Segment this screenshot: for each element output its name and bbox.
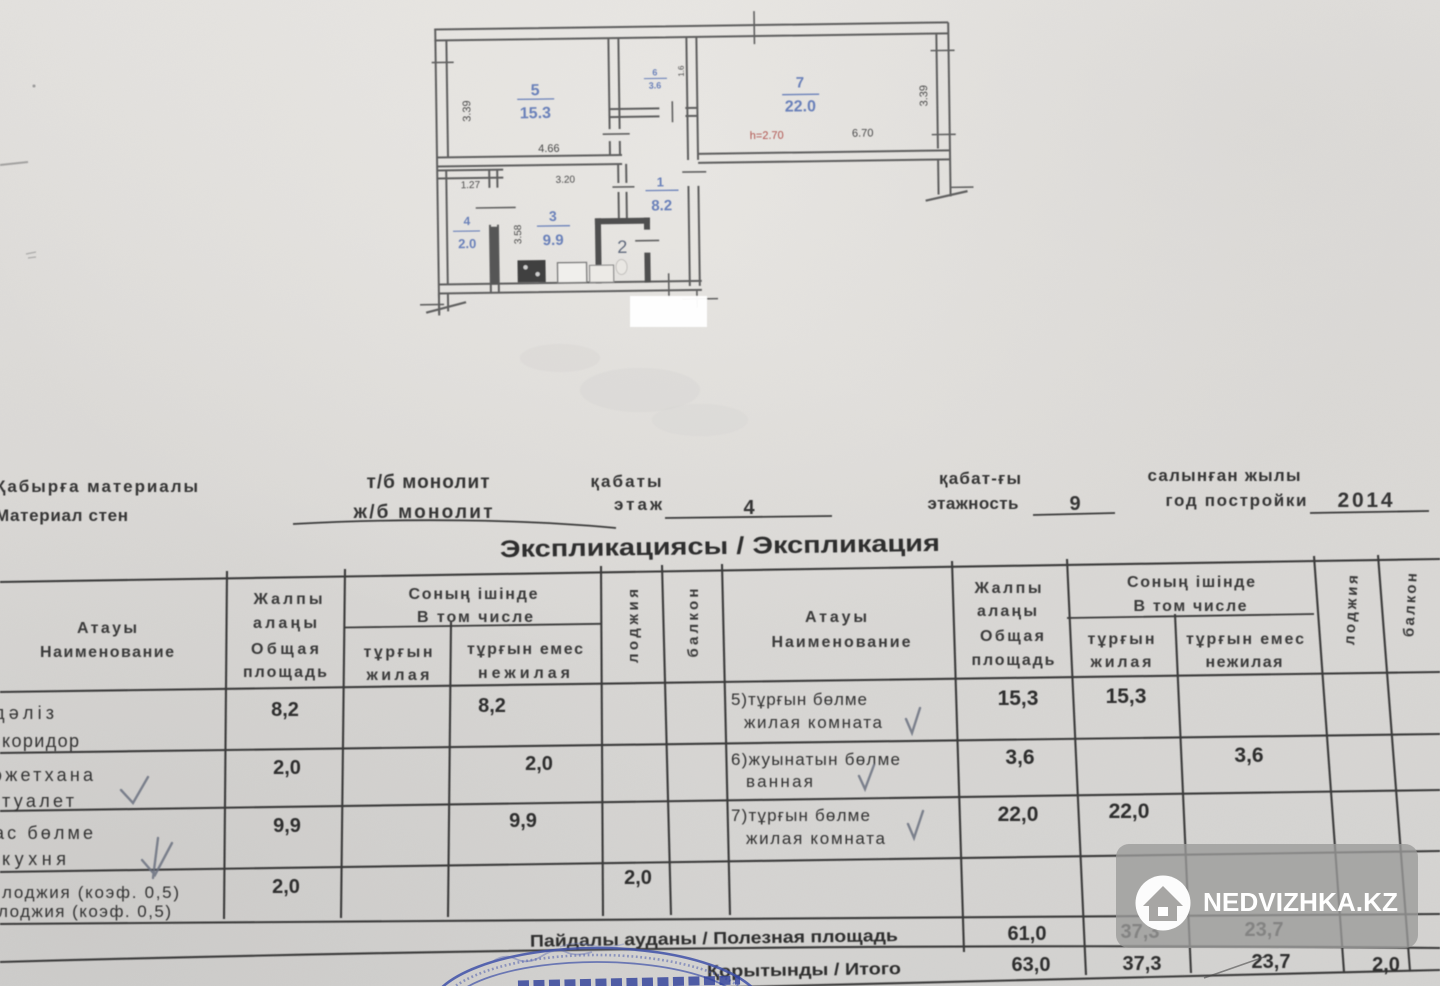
svg-text:6.70: 6.70 <box>852 127 874 139</box>
svg-text:Жалпы: Жалпы <box>974 580 1042 597</box>
svg-text:8.2: 8.2 <box>651 197 672 214</box>
svg-text:В том числе: В том числе <box>1134 598 1247 615</box>
svg-text:15,3: 15,3 <box>1106 685 1147 708</box>
svg-text:ас бөлме: ас бөлме <box>0 823 93 843</box>
svg-text:дәліз: дәліз <box>0 703 54 723</box>
svg-text:22.0: 22.0 <box>785 98 816 115</box>
svg-text:тұрғын: тұрғын <box>364 644 433 661</box>
svg-text:7: 7 <box>796 74 805 91</box>
svg-text:Жалпы: Жалпы <box>253 591 323 608</box>
svg-text:2.0: 2.0 <box>458 236 476 251</box>
svg-text:8,2: 8,2 <box>478 695 506 717</box>
svg-text:жилая: жилая <box>366 667 430 684</box>
svg-text:3.39: 3.39 <box>918 85 930 107</box>
svg-text:22,0: 22,0 <box>1109 800 1150 823</box>
svg-text:2,0: 2,0 <box>1372 954 1400 976</box>
svg-text:3.39: 3.39 <box>461 100 473 122</box>
svg-text:тұрғын емес: тұрғын емес <box>1186 631 1304 648</box>
svg-text:салынған жылы: салынған жылы <box>1148 466 1301 485</box>
svg-text:9,9: 9,9 <box>509 810 537 832</box>
svg-text:3.58: 3.58 <box>513 224 524 244</box>
svg-text:NEDVIZHKA.KZ: NEDVIZHKA.KZ <box>1203 887 1398 917</box>
svg-text:этажность: этажность <box>928 494 1019 513</box>
svg-text:Атауы: Атауы <box>77 620 137 637</box>
svg-text:Общая: Общая <box>251 641 319 658</box>
svg-text:4.66: 4.66 <box>538 143 560 155</box>
svg-text:2,0: 2,0 <box>273 757 301 779</box>
svg-text:1.6: 1.6 <box>677 65 686 77</box>
svg-text:2,0: 2,0 <box>624 867 652 889</box>
svg-text:3,6: 3,6 <box>1234 744 1263 767</box>
svg-text:лоджия (коэф. 0,5): лоджия (коэф. 0,5) <box>0 902 171 921</box>
svg-text:площадь: площадь <box>972 652 1055 669</box>
svg-text:тұрғын: тұрғын <box>1088 631 1155 648</box>
svg-text:Наименование: Наименование <box>772 634 911 651</box>
svg-text:1.27: 1.27 <box>461 180 481 191</box>
svg-text:2: 2 <box>617 237 627 257</box>
svg-text:15.3: 15.3 <box>520 105 551 122</box>
svg-text:год постройки: год постройки <box>1166 491 1307 510</box>
svg-text:площадь: площадь <box>243 664 327 681</box>
svg-text:23,7: 23,7 <box>1252 951 1291 973</box>
svg-text:4: 4 <box>743 497 755 519</box>
svg-text:8,2: 8,2 <box>271 699 299 721</box>
svg-text:тұрғын емес: тұрғын емес <box>467 641 583 658</box>
svg-text:5)тұрғын бөлме: 5)тұрғын бөлме <box>731 690 867 709</box>
svg-text:нежилая: нежилая <box>478 665 570 682</box>
svg-text:3.6: 3.6 <box>649 80 662 90</box>
svg-text:нежилая: нежилая <box>1206 654 1283 671</box>
svg-text:22,0: 22,0 <box>998 803 1039 826</box>
svg-text:37,3: 37,3 <box>1123 953 1162 975</box>
svg-text:9: 9 <box>1069 493 1080 515</box>
svg-text:3.20: 3.20 <box>556 175 576 186</box>
svg-text:1: 1 <box>657 174 664 189</box>
svg-text:жилая: жилая <box>1090 654 1152 671</box>
svg-text:9.9: 9.9 <box>543 232 564 249</box>
svg-text:Соның ішінде: Соның ішінде <box>1127 574 1255 591</box>
svg-text:h=2.70: h=2.70 <box>750 130 784 142</box>
svg-text:61,0: 61,0 <box>1008 923 1047 945</box>
svg-text:қабат-ғы: қабат-ғы <box>939 469 1021 488</box>
svg-text:қабаты: қабаты <box>591 472 662 491</box>
svg-text:коридор: коридор <box>2 731 79 751</box>
svg-text:2,0: 2,0 <box>525 753 553 775</box>
svg-text:лоджия (коэф. 0,5): лоджия (коэф. 0,5) <box>2 883 179 902</box>
svg-text:Материал стен: Материал стен <box>0 506 128 525</box>
svg-text:Атауы: Атауы <box>805 609 867 626</box>
svg-text:6: 6 <box>652 67 657 77</box>
svg-text:В том числе: В том числе <box>417 609 533 626</box>
svg-text:63,0: 63,0 <box>1012 954 1051 976</box>
svg-text:7)тұрғын бөлме: 7)тұрғын бөлме <box>731 806 870 825</box>
svg-text:3: 3 <box>549 208 557 224</box>
svg-text:Соның ішінде: Соның ішінде <box>409 586 538 603</box>
svg-text:этаж: этаж <box>614 495 663 514</box>
svg-text:т/б монолит: т/б монолит <box>367 472 490 493</box>
svg-text:4: 4 <box>463 214 470 228</box>
svg-text:9,9: 9,9 <box>273 815 301 837</box>
svg-text:2,0: 2,0 <box>272 876 300 898</box>
svg-text:5: 5 <box>531 82 540 99</box>
svg-text:3,6: 3,6 <box>1005 746 1034 769</box>
svg-text:15,3: 15,3 <box>998 687 1039 710</box>
svg-text:Общая: Общая <box>980 628 1044 645</box>
svg-text:Наименование: Наименование <box>40 644 174 661</box>
